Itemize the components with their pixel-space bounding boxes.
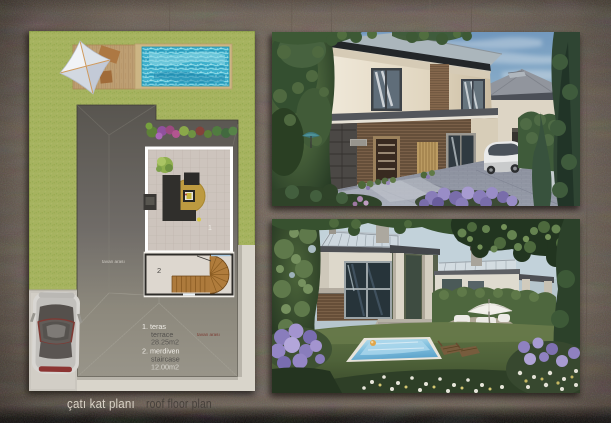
svg-text:12.00m2: 12.00m2 (151, 363, 179, 372)
svg-text:tavan arası: tavan arası (197, 332, 220, 337)
svg-text:1: 1 (208, 225, 212, 232)
svg-text:28.25m2: 28.25m2 (151, 338, 179, 347)
svg-text:2: 2 (157, 266, 161, 275)
svg-text:tavan arası: tavan arası (102, 259, 125, 264)
